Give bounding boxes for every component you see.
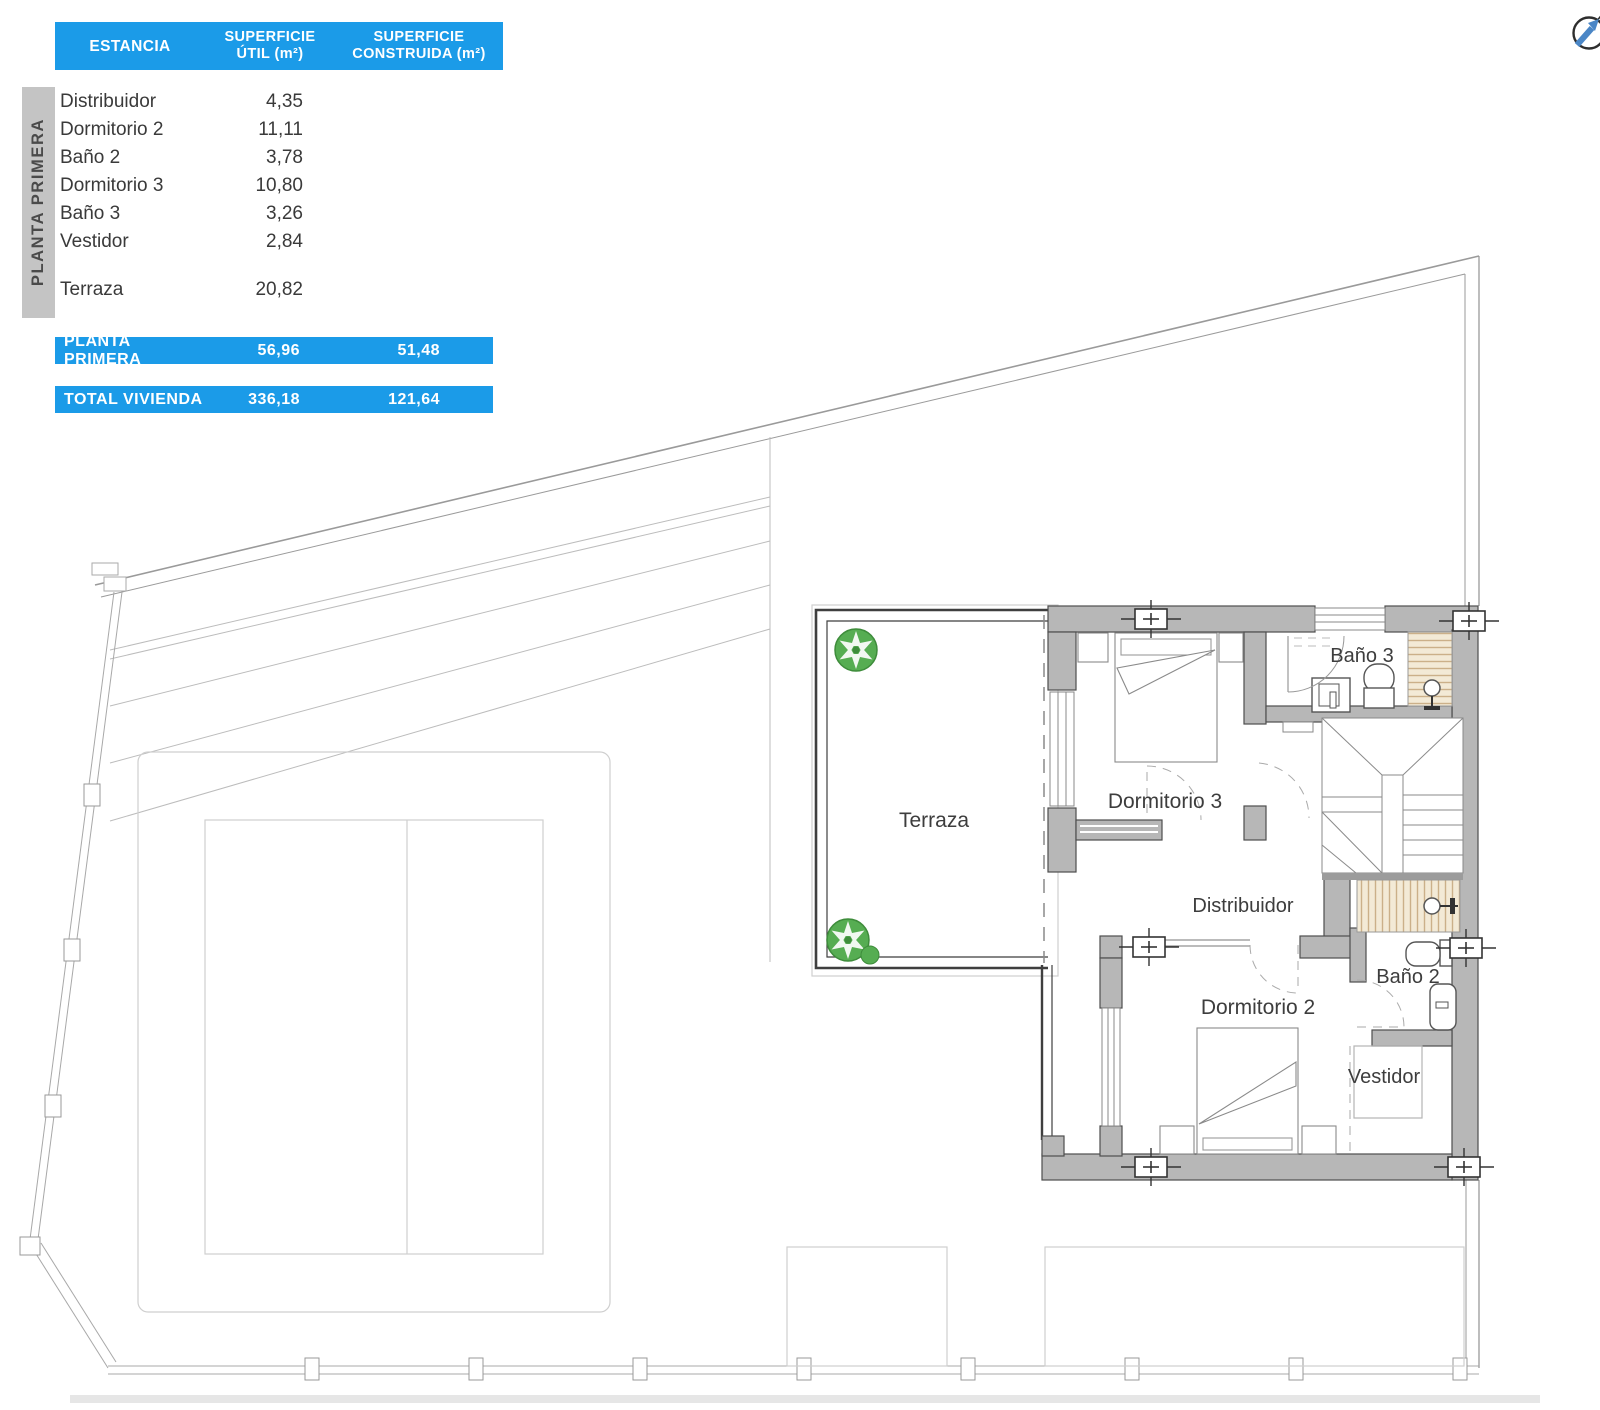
room-util-value: 10,80 <box>205 175 303 197</box>
wall-bottom <box>1042 1154 1452 1180</box>
col-header-estancia: ESTANCIA <box>55 22 205 70</box>
floor-tab-label: PLANTA PRIMERA <box>29 118 48 286</box>
wall-dorm3-south <box>1076 820 1162 840</box>
window-top <box>1315 608 1385 630</box>
room-util-value: 4,35 <box>205 91 303 113</box>
wall-left-upper <box>1048 632 1076 690</box>
wall-dorm3-east <box>1244 632 1266 724</box>
table-row: Dormitorio 2 11,11 <box>60 116 500 144</box>
label-distribuidor: Distribuidor <box>1192 895 1293 917</box>
room-util-value: 3,78 <box>205 147 303 169</box>
fence-post <box>64 939 80 961</box>
table-row: Distribuidor 4,35 <box>60 88 500 116</box>
wall-dorm2-west-a <box>1100 958 1122 1008</box>
slope-terrace-lines <box>92 437 770 962</box>
floor-plan-page: Terraza Dormitorio 3 Baño 3 Distribuidor… <box>0 0 1600 1410</box>
door-arc-dorm2 <box>1250 945 1298 993</box>
label-dormitorio3: Dormitorio 3 <box>1108 790 1222 813</box>
table-header: ESTANCIA SUPERFICIE ÚTIL (m²) SUPERFICIE… <box>55 22 503 70</box>
wall-left-lower <box>1048 808 1076 872</box>
room-area-list: Distribuidor 4,35 Dormitorio 2 11,11 Bañ… <box>60 88 500 304</box>
wall-bano2-south <box>1372 1030 1452 1046</box>
col-header-construida: SUPERFICIE CONSTRUIDA (m²) <box>335 22 503 70</box>
room-name: Terraza <box>60 279 205 301</box>
room-name: Baño 2 <box>60 147 205 169</box>
label-dormitorio2: Dormitorio 2 <box>1201 996 1315 1019</box>
col-header-util: SUPERFICIE ÚTIL (m²) <box>205 22 335 70</box>
terraza-area <box>812 605 1058 1140</box>
table-row: Baño 2 3,78 <box>60 144 500 172</box>
label-bano2: Baño 2 <box>1376 966 1439 988</box>
room-util-value: 11,11 <box>205 119 303 141</box>
room-util-value: 3,26 <box>205 203 303 225</box>
wall-stub <box>1244 806 1266 840</box>
section-marker-icon <box>1119 928 1179 966</box>
label-bano3: Baño 3 <box>1330 645 1393 667</box>
wall-top-left <box>1048 606 1315 632</box>
nightstand <box>1078 633 1108 662</box>
fence-post <box>84 784 100 806</box>
room-name: Distribuidor <box>60 91 205 113</box>
toilet-tank <box>1364 688 1394 708</box>
nightstand <box>1219 633 1243 662</box>
room-util-value: 20,82 <box>205 279 303 301</box>
fence-post <box>45 1095 61 1117</box>
grand-total-bar: TOTAL VIVIENDA 336,18 121,64 <box>55 386 493 413</box>
floor-total-util: 56,96 <box>205 342 300 360</box>
floor-total-bar: PLANTA PRIMERA 56,96 51,48 <box>55 337 493 364</box>
shower-head-icon <box>1424 680 1440 696</box>
tree-icon <box>861 946 879 964</box>
window-dorm3 <box>1050 692 1074 806</box>
wall-niche <box>1283 722 1313 732</box>
left-fence <box>20 592 122 1368</box>
terraza-parapet-inner <box>827 621 1048 957</box>
grand-total-construida: 121,64 <box>300 391 440 409</box>
room-name: Dormitorio 2 <box>60 119 205 141</box>
tree-icon <box>835 629 877 671</box>
table-row: Vestidor 2,84 <box>60 228 500 256</box>
room-util-value: 2,84 <box>205 231 303 253</box>
wall-dorm2-north-stub <box>1100 936 1122 958</box>
table-row: Terraza 20,82 <box>60 276 500 304</box>
parcel-boundary <box>95 256 1479 1368</box>
window-dorm2 <box>1102 1008 1120 1126</box>
wall-step <box>1042 1136 1064 1156</box>
room-name: Baño 3 <box>60 203 205 225</box>
floor-total-label: PLANTA PRIMERA <box>55 333 205 369</box>
label-terraza: Terraza <box>899 809 969 832</box>
table-row: Baño 3 3,26 <box>60 200 500 228</box>
room-name: Vestidor <box>60 231 205 253</box>
toilet-icon <box>1406 942 1440 966</box>
wall-dorm2-north <box>1300 936 1352 958</box>
staircase <box>1322 718 1463 880</box>
shower-head-icon <box>1424 898 1440 914</box>
wall-dorm2-west-b <box>1100 1126 1122 1156</box>
north-arrow-icon <box>1574 12 1600 49</box>
fence-corner-post <box>20 1237 40 1255</box>
nightstand <box>1302 1126 1336 1154</box>
nightstand <box>1160 1126 1194 1154</box>
table-row: Dormitorio 3 10,80 <box>60 172 500 200</box>
wall-bano2-west <box>1350 928 1366 982</box>
room-name: Dormitorio 3 <box>60 175 205 197</box>
floor-tab-planta-primera: PLANTA PRIMERA <box>22 87 55 318</box>
grand-total-label: TOTAL VIVIENDA <box>55 391 205 409</box>
label-vestidor: Vestidor <box>1348 1066 1421 1088</box>
grand-total-util: 336,18 <box>205 391 300 409</box>
floor-total-construida: 51,48 <box>300 342 440 360</box>
bottom-fence <box>70 1358 1540 1399</box>
